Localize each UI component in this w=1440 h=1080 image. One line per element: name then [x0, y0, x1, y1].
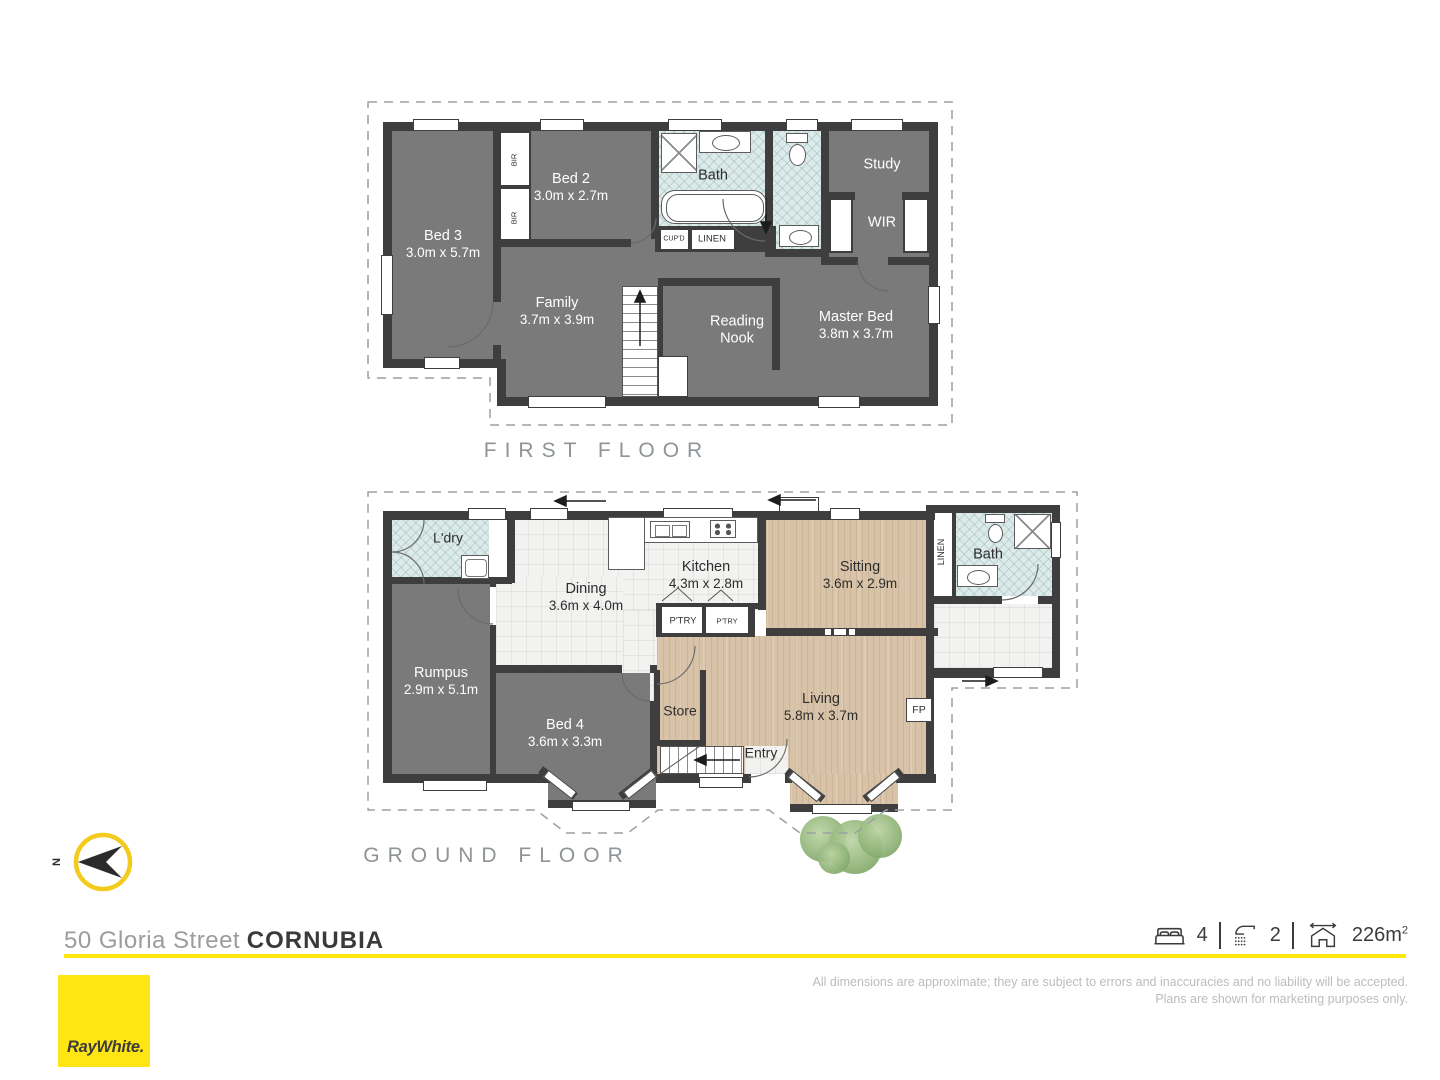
vanity-basin	[957, 565, 998, 587]
window	[468, 508, 506, 520]
room-label-bath: Bath	[698, 167, 728, 184]
shower	[1014, 514, 1051, 549]
wall	[651, 122, 659, 239]
wall	[658, 278, 780, 286]
room-label-family: Family3.7m x 3.9m	[520, 295, 594, 329]
room-label-entry: Entry	[745, 745, 778, 762]
wall	[490, 625, 496, 774]
basin	[779, 225, 819, 247]
divider	[1219, 922, 1221, 949]
room-name: Bed 2	[552, 171, 590, 187]
room-label-wir: WIR	[868, 214, 896, 231]
stair-landing	[658, 356, 688, 397]
wall	[493, 345, 501, 367]
toilet-bowl	[789, 144, 806, 166]
wall	[926, 505, 1060, 513]
room-label-bed2: Bed 23.0m x 2.7m	[534, 171, 608, 205]
room-dims: 2.9m x 5.1m	[404, 683, 478, 699]
room-label-study: Study	[863, 156, 900, 173]
room-name: L'dry	[433, 530, 463, 546]
room-name: Entry	[745, 745, 778, 761]
label-fireplace: FP	[912, 704, 925, 716]
wall	[507, 511, 515, 583]
room-label-bath: Bath	[973, 546, 1003, 563]
window	[424, 357, 460, 369]
window	[786, 119, 818, 131]
room-label-rumpus: Rumpus2.9m x 5.1m	[404, 665, 478, 699]
robe	[903, 197, 929, 253]
wall	[856, 628, 938, 636]
window	[812, 804, 872, 814]
window	[423, 780, 487, 791]
room-dims: 3.7m x 3.9m	[520, 313, 594, 329]
label-linen: LINEN	[698, 234, 726, 245]
staircase	[622, 286, 658, 397]
area-sup: 2	[1402, 924, 1408, 936]
room-dims: 3.6m x 3.3m	[528, 735, 602, 751]
room-dims: 3.6m x 2.9m	[823, 577, 897, 593]
wall	[902, 192, 938, 200]
wall	[772, 278, 780, 370]
vanity-basin	[699, 131, 751, 153]
wall	[888, 257, 938, 265]
wall	[829, 192, 855, 200]
window	[779, 497, 819, 512]
room-label-store: Store	[663, 703, 696, 720]
floorplan-page: Bed 33.0m x 5.7m Bed 23.0m x 2.7m Bath S…	[0, 0, 1440, 1080]
disclaimer-line: Plans are shown for marketing purposes o…	[708, 991, 1408, 1008]
divider	[1292, 922, 1294, 949]
window	[413, 119, 459, 131]
wall	[1038, 596, 1060, 604]
disclaimer: All dimensions are approximate; they are…	[708, 974, 1408, 1007]
room-name: Bath	[973, 546, 1003, 562]
showers-count: 2	[1270, 924, 1281, 947]
wall	[926, 505, 934, 628]
shower	[661, 133, 697, 173]
room-label-laundry: L'dry	[433, 530, 463, 547]
wall	[496, 665, 622, 673]
property-address: 50 Gloria Street CORNUBIA	[64, 927, 384, 955]
room-name: WIR	[868, 214, 896, 230]
label-linen: LINEN	[936, 539, 946, 566]
room-name: Nook	[710, 331, 764, 348]
wall	[846, 628, 849, 636]
kitchen-sink	[650, 521, 690, 538]
wall	[1043, 668, 1060, 678]
room-label-sitting: Sitting3.6m x 2.9m	[823, 559, 897, 593]
label-bir: BIR	[510, 154, 519, 167]
room-dims: 3.0m x 2.7m	[534, 189, 608, 205]
wall	[383, 122, 392, 368]
room-label-reading-nook: ReadingNook	[710, 314, 764, 349]
ground-floor-title: GROUND FLOOR	[363, 844, 631, 868]
room-name: Dining	[565, 581, 606, 597]
window	[528, 396, 606, 408]
room-name: Living	[802, 691, 840, 707]
wall	[930, 668, 993, 678]
wall	[654, 670, 660, 746]
wall	[831, 628, 834, 636]
laundry-bench	[489, 518, 509, 579]
wall	[766, 628, 824, 636]
window	[928, 286, 940, 324]
disclaimer-line: All dimensions are approximate; they are…	[708, 974, 1408, 991]
wall	[383, 511, 392, 783]
wall	[829, 257, 858, 265]
room-name: Bath	[698, 167, 728, 183]
window	[530, 508, 568, 520]
room-name: Bed 4	[546, 717, 584, 733]
window	[572, 801, 630, 811]
address-suburb: CORNUBIA	[247, 927, 384, 954]
compass: N	[36, 826, 156, 901]
address-street: 50 Gloria Street	[64, 927, 240, 954]
compass-north-label: N	[51, 858, 63, 866]
raywhite-logo-text: RayWhite.	[67, 1038, 144, 1057]
room-label-living: Living5.8m x 3.7m	[784, 691, 858, 725]
window	[993, 667, 1043, 678]
mudroom-floor	[934, 604, 1052, 668]
wall	[930, 596, 1002, 604]
label-pantry: P'TRY	[716, 617, 737, 626]
room-dims: 5.8m x 3.7m	[784, 709, 858, 725]
room-dims: 3.6m x 4.0m	[549, 599, 623, 615]
room-name: Bed 3	[424, 228, 462, 244]
room-name: Study	[863, 156, 900, 172]
label-pantry: P'TRY	[670, 616, 697, 627]
wall	[658, 286, 663, 356]
wall	[654, 740, 706, 746]
window	[818, 396, 860, 408]
bed-icon	[1153, 924, 1186, 946]
wall	[501, 239, 631, 247]
window	[830, 508, 860, 520]
room-name: Rumpus	[414, 665, 468, 681]
wall	[821, 122, 829, 265]
laundry-trough	[461, 555, 489, 579]
room-name: Kitchen	[682, 559, 730, 575]
wall	[765, 249, 829, 257]
first-floor-title: FIRST FLOOR	[484, 439, 710, 463]
kitchen-counter-return	[608, 517, 645, 570]
wall	[748, 603, 766, 609]
window	[699, 777, 743, 788]
room-label-dining: Dining3.6m x 4.0m	[549, 581, 623, 615]
room-name: Reading	[710, 314, 764, 330]
accent-rule	[64, 954, 1406, 958]
window	[381, 255, 393, 315]
room-dims: 3.0m x 5.7m	[406, 246, 480, 262]
label-bir: BIR	[510, 212, 519, 225]
wall	[765, 122, 773, 257]
window	[1051, 522, 1061, 558]
toilet	[985, 514, 1005, 523]
toilet	[786, 133, 808, 143]
toilet-bowl	[988, 524, 1003, 543]
wall	[758, 511, 766, 610]
area-value: 226m2	[1352, 924, 1408, 947]
room-name: Family	[536, 295, 579, 311]
room-name: Sitting	[840, 559, 880, 575]
wall	[497, 185, 531, 189]
room-name: Store	[663, 703, 696, 719]
wall	[493, 131, 501, 302]
wall	[952, 513, 956, 596]
staircase	[660, 746, 744, 774]
bathtub	[661, 190, 767, 224]
window	[540, 119, 584, 131]
raywhite-logo: RayWhite.	[58, 975, 150, 1067]
robe	[829, 197, 853, 253]
room-name: Master Bed	[819, 309, 893, 325]
room-label-bed3: Bed 33.0m x 5.7m	[406, 228, 480, 262]
wall	[743, 774, 751, 783]
room-label-bed4: Bed 43.6m x 3.3m	[528, 717, 602, 751]
room-label-kitchen: Kitchen4.3m x 2.8m	[669, 559, 743, 593]
tree	[858, 814, 902, 858]
property-stats: 4 2 226m2	[1153, 921, 1408, 949]
room-dims: 4.3m x 2.8m	[669, 577, 743, 593]
window	[668, 119, 722, 131]
wall	[656, 774, 699, 783]
tree	[818, 842, 850, 874]
label-cupd: CUP'D	[663, 236, 684, 243]
room-label-master: Master Bed3.8m x 3.7m	[819, 309, 893, 343]
wall	[490, 577, 496, 587]
beds-count: 4	[1197, 924, 1208, 947]
house-area-icon	[1305, 921, 1341, 949]
shower-icon	[1232, 923, 1259, 947]
cased-opening	[824, 628, 856, 636]
cooktop	[710, 520, 736, 538]
window	[851, 119, 903, 131]
room-dims: 3.8m x 3.7m	[819, 327, 893, 343]
wall	[700, 670, 706, 746]
